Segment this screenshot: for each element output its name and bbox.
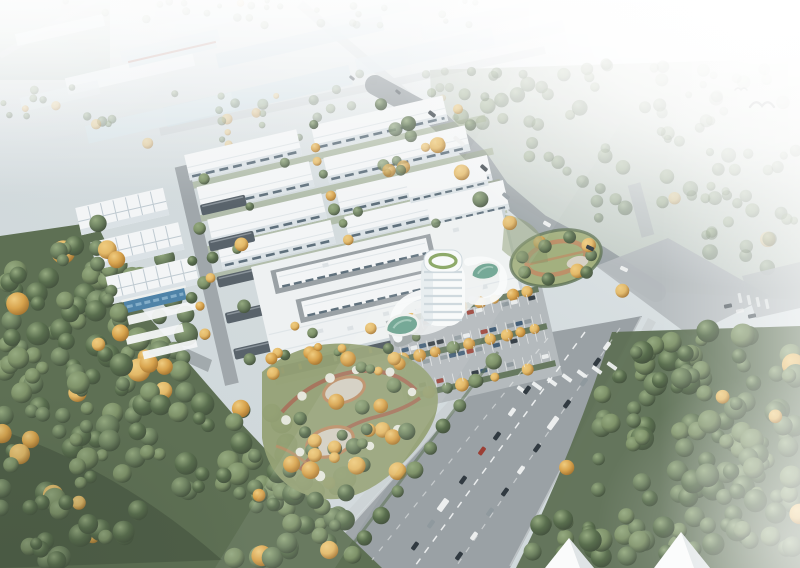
tree xyxy=(237,300,251,314)
tree xyxy=(187,256,197,266)
rendering-canvas xyxy=(0,0,800,568)
haze-topleft xyxy=(0,0,240,160)
tree xyxy=(90,257,105,272)
tree xyxy=(392,485,404,497)
tree xyxy=(102,294,114,306)
tree xyxy=(195,302,204,311)
tree xyxy=(338,344,347,353)
flower-shrub xyxy=(297,391,306,400)
tree xyxy=(108,251,125,268)
tree xyxy=(186,292,198,304)
tree xyxy=(357,530,372,545)
tree xyxy=(524,543,542,561)
tree xyxy=(6,292,29,315)
tree xyxy=(486,353,502,369)
tree xyxy=(110,304,129,323)
tree xyxy=(630,346,643,359)
tree xyxy=(193,222,206,235)
tree xyxy=(290,322,299,331)
tree xyxy=(58,333,75,350)
haze-bottomright xyxy=(560,360,800,568)
tree xyxy=(199,329,210,340)
tree xyxy=(57,254,69,266)
tree xyxy=(406,461,423,478)
tree xyxy=(206,273,216,283)
tree xyxy=(436,419,451,434)
tree xyxy=(373,507,390,524)
tree xyxy=(235,238,249,252)
tree xyxy=(530,515,551,536)
tree xyxy=(31,296,45,310)
tree xyxy=(314,343,322,351)
tree xyxy=(468,374,482,388)
tree xyxy=(92,338,105,351)
tree xyxy=(307,328,318,339)
aerial-rendering xyxy=(0,0,800,568)
tree xyxy=(112,324,129,341)
flower-shrub xyxy=(281,415,291,425)
tree xyxy=(207,252,219,264)
tree xyxy=(89,215,106,232)
vignette-bottomleft xyxy=(0,360,280,568)
tree xyxy=(26,322,50,346)
tree xyxy=(424,442,437,455)
tree xyxy=(308,350,323,365)
tree xyxy=(56,292,74,310)
tree xyxy=(10,267,27,284)
tree xyxy=(3,329,20,346)
tree xyxy=(453,399,466,412)
